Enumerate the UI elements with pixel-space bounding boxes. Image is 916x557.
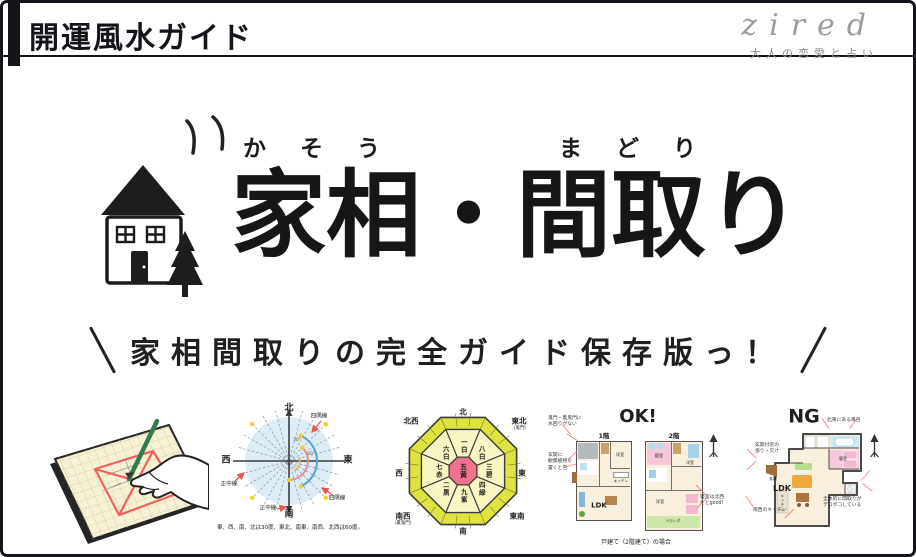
- catchcopy: 家相間取りの完全ガイド保存版っ！: [130, 328, 786, 372]
- bed-icon-pink: [686, 494, 698, 503]
- desk-icon: [657, 444, 663, 449]
- seichu-line-label-left: 正中線: [221, 482, 238, 488]
- dir-n: 北: [459, 408, 467, 416]
- sofa-icon: [579, 492, 585, 507]
- room-label-yoshitsu-1f: 洋室: [616, 453, 624, 457]
- plant-icon: [579, 511, 585, 517]
- house-icon: [97, 141, 209, 299]
- floor1-plan: 洋室 キッチン LDK: [576, 441, 632, 521]
- yosumi-line-label-bottom: 四隅線: [329, 496, 346, 502]
- ldk-label-1f: LDK: [591, 503, 607, 510]
- stairs-icon: [673, 443, 681, 454]
- sketch-illustration: [37, 413, 209, 545]
- compass-south-label: 南: [284, 511, 293, 520]
- bed-icon-pink: [843, 460, 857, 468]
- dir-se: 東南: [510, 512, 525, 520]
- ng-annotation-kitchen: 南西のキッチン: [753, 508, 787, 514]
- catchcopy-row: 家相間取りの完全ガイド保存版っ！: [3, 321, 913, 379]
- floor2-plan: 寝室 洋室 洋室 ベランダ: [645, 441, 703, 531]
- degree-label-60: 60°: [307, 451, 315, 457]
- ng-annotation-genkan: 玄関付近の 張り・欠け: [755, 443, 779, 456]
- seichu-line-label-bottom: 正中線: [260, 506, 277, 512]
- thumb-ok-plan: OK! 1階 2階 洋室 キッチン LDK 寝室: [548, 401, 724, 553]
- house-roof: [101, 165, 185, 215]
- star-w: 七赤: [435, 464, 442, 479]
- logo-tagline: 大人の恋愛と占い: [741, 45, 878, 61]
- toilet-icon: [848, 486, 853, 492]
- ng-room-genkan: 玄関: [769, 477, 777, 481]
- washer-icon: [649, 470, 656, 478]
- slash-left-icon: [89, 326, 116, 373]
- page-title: 家相・間取り: [231, 159, 801, 273]
- room-label-yoshitsu-2f-b: 洋室: [656, 500, 664, 504]
- table-icon: [792, 475, 812, 488]
- urakimon-label: （裏鬼門）: [392, 522, 415, 527]
- bathtub-icon: [835, 438, 854, 446]
- red-pointer-line: [567, 434, 579, 442]
- room-label-veranda: ベランダ: [666, 520, 680, 524]
- dining-table-icon: [796, 493, 809, 502]
- north-arrow-icon: [869, 434, 880, 460]
- star-center: 五黄: [460, 463, 467, 479]
- star-ne: 八白: [478, 446, 485, 461]
- logo-wordmark: zired: [741, 8, 878, 44]
- ng-title: NG: [788, 408, 820, 427]
- banner-page: 開運風水ガイド zired 大人の恋愛と占い かそう まどり 家相・間取り 家相…: [0, 0, 916, 557]
- thumb-ng-plan: NG LDK 寝室 玄関 キッチン 北東にある風呂: [741, 401, 915, 553]
- sink-icon: [580, 463, 587, 470]
- compass-axes: [233, 415, 345, 507]
- dir-e: 東: [518, 469, 526, 477]
- desk-icon: [649, 444, 655, 449]
- toilet-room: [805, 436, 815, 448]
- dir-nw: 北西: [404, 417, 419, 425]
- furigana-kaso: かそう: [243, 129, 414, 163]
- ng-room-shinshitsu: 寝室: [839, 457, 847, 461]
- dir-s: 南: [459, 527, 467, 535]
- ok-caption: 戸建て（2階建て）の場合: [548, 537, 724, 546]
- compass-west-label: 西: [221, 457, 230, 466]
- dir-ne: 東北: [512, 417, 527, 425]
- room-label-yoshitsu-2f: 洋室: [686, 461, 694, 465]
- ok-annotation-genkan: 玄関に 観葉植物を 置くと吉: [548, 453, 572, 472]
- star-s: 九紫: [460, 489, 467, 504]
- kitchen-counter: [613, 472, 629, 478]
- dir-sw: 南西: [396, 512, 411, 520]
- site-logo: zired 大人の恋愛と占い: [741, 8, 878, 61]
- slash-right-icon: [800, 326, 827, 373]
- site-title: 開運風水ガイド: [29, 13, 253, 57]
- washroom: [817, 436, 829, 448]
- kimon-label: （鬼門）: [511, 427, 529, 432]
- furigana-madori: まどり: [559, 129, 730, 163]
- star-se: 四緑: [478, 482, 485, 497]
- star-nw: 六白: [442, 446, 449, 461]
- ok-title: OK!: [619, 408, 656, 426]
- thumb-direction-compass: 30° 60° 北 南 西 東 四隅線 正中線 正中線 四隅線 東、西、南、北は…: [211, 403, 369, 537]
- entrance-step: [572, 472, 577, 483]
- yosumi-line-label-top: 四隅線: [311, 414, 328, 420]
- room-label-shinshitsu: 寝室: [655, 454, 663, 458]
- star-e: 三碧: [485, 464, 492, 479]
- red-pointer-line: [747, 461, 757, 471]
- ng-annotation-shape: 全体的に間取りが デコボコしている: [823, 497, 861, 510]
- star-n: 一白: [460, 439, 467, 454]
- floor1-label: 1階: [598, 433, 609, 440]
- compass-east-label: 東: [343, 457, 352, 466]
- stairs-icon: [601, 443, 609, 454]
- room-label-kitchen: キッチン: [614, 480, 628, 484]
- ng-ldk-label: LDK: [773, 485, 791, 493]
- floor2-label: 2階: [668, 433, 679, 440]
- thumb-floorplan-sketch: [37, 413, 209, 545]
- compass-north-label: 北: [284, 405, 293, 414]
- sofa-icon: [795, 463, 812, 470]
- bathroom: [578, 443, 598, 459]
- thumb-kyusei-chart: 五黄 一白 八白 三碧 四緑 九紫 二黒 七赤 六白 北 東北 （鬼門） 東 東…: [389, 401, 541, 539]
- degree-label-30: 30°: [293, 437, 301, 443]
- compass-caption: 東、西、南、北は30度、東北、南東、南西、北西は60度。: [211, 523, 369, 531]
- dir-w: 西: [395, 469, 403, 477]
- north-arrow-icon: [708, 434, 719, 460]
- red-pointer-line: [745, 496, 753, 507]
- star-sw: 二黒: [442, 482, 449, 497]
- bed-icon-blue: [688, 444, 699, 458]
